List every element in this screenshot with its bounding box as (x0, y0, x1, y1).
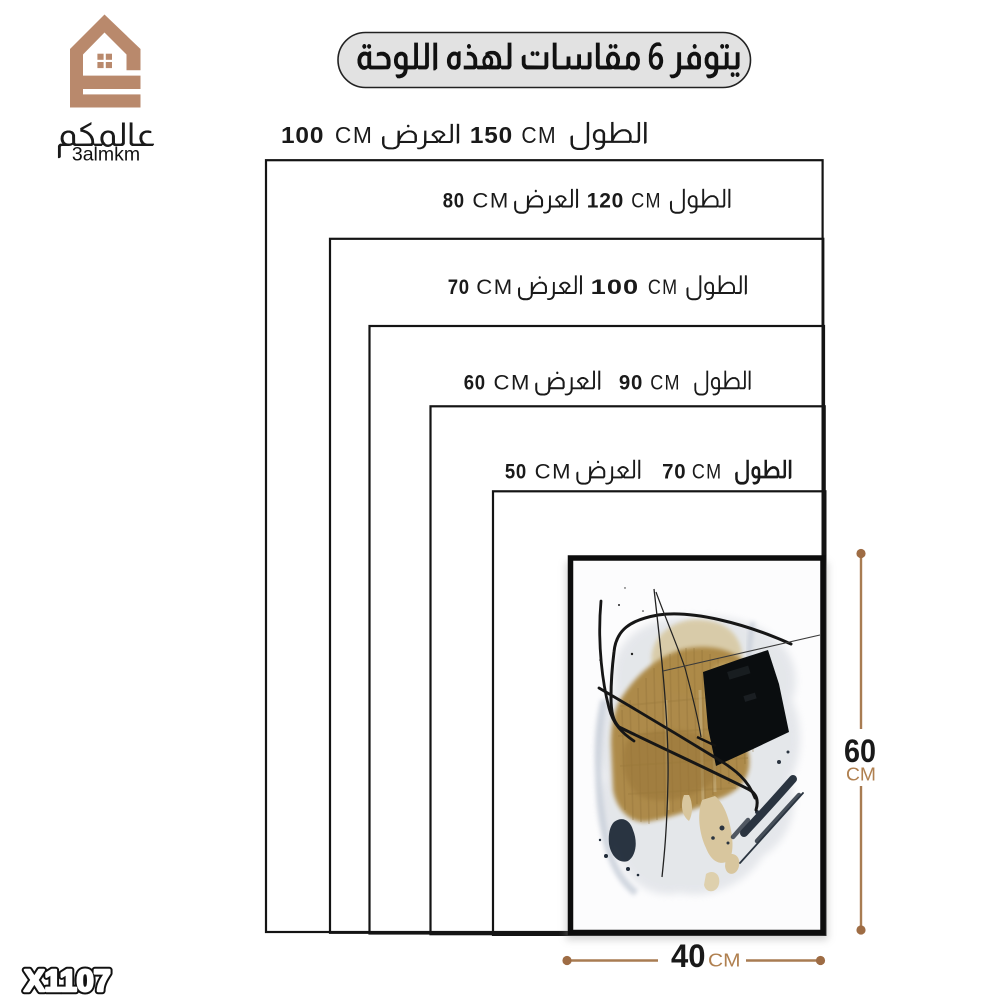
svg-text:150: 150 (470, 122, 513, 148)
svg-text:CM: CM (521, 122, 557, 148)
svg-text:CM: CM (472, 189, 509, 213)
svg-text:100: 100 (591, 275, 639, 299)
svg-text:CM: CM (846, 764, 876, 785)
svg-text:CM: CM (335, 122, 374, 148)
svg-text:CM: CM (692, 459, 723, 483)
svg-text:50: 50 (505, 459, 527, 483)
svg-text:70: 70 (448, 275, 470, 299)
svg-text:CM: CM (650, 370, 681, 394)
svg-text:120: 120 (587, 189, 624, 213)
svg-text:3almkm: 3almkm (72, 144, 140, 166)
svg-text:80: 80 (443, 189, 465, 213)
svg-text:CM: CM (648, 275, 679, 299)
svg-text:60: 60 (464, 370, 486, 394)
svg-text:90: 90 (619, 370, 643, 394)
svg-text:CM: CM (631, 189, 662, 213)
svg-text:100: 100 (281, 122, 324, 148)
svg-text:CM: CM (494, 370, 531, 394)
svg-text:X1107: X1107 (24, 963, 110, 998)
svg-text:CM: CM (535, 459, 572, 483)
svg-text:CM: CM (476, 275, 513, 299)
svg-text:CM: CM (708, 950, 741, 971)
svg-text:70: 70 (662, 459, 686, 483)
svg-text:40: 40 (671, 938, 706, 974)
